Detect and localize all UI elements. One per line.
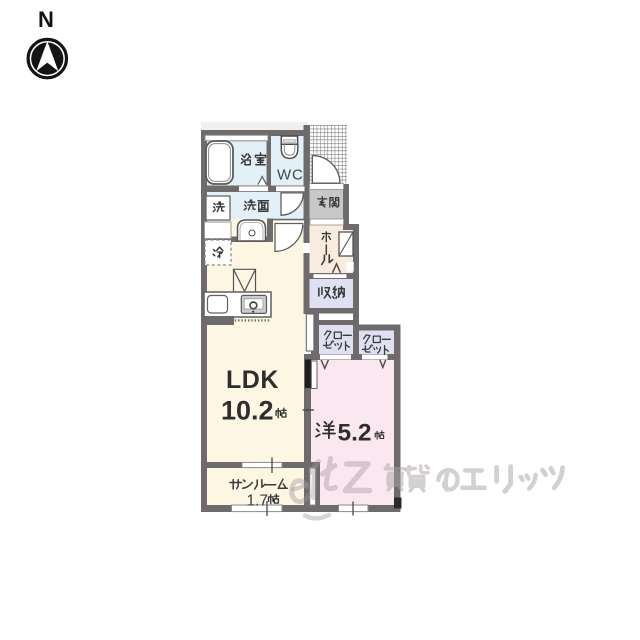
svg-text:LDK: LDK bbox=[226, 366, 279, 394]
svg-text:1.7: 1.7 bbox=[247, 493, 269, 510]
svg-text:WC: WC bbox=[277, 167, 304, 184]
svg-text:N: N bbox=[38, 7, 54, 32]
svg-text:10.2: 10.2 bbox=[221, 396, 274, 426]
svg-text:5.2: 5.2 bbox=[338, 420, 372, 447]
